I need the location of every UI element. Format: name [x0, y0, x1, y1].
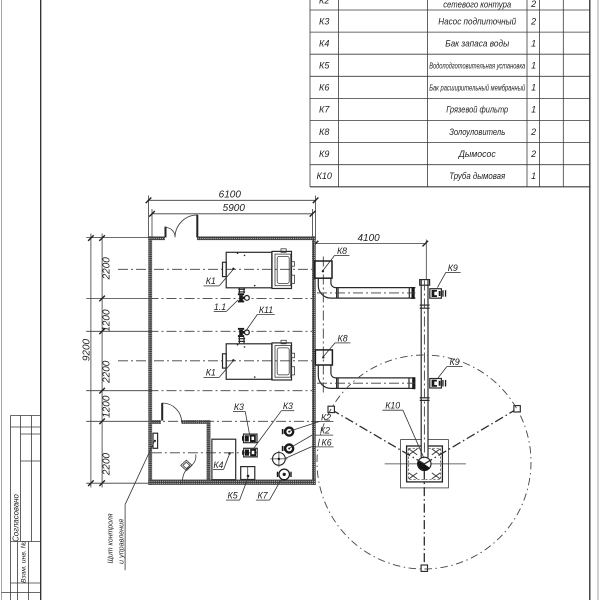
- svg-text:К6: К6: [322, 437, 332, 447]
- svg-text:Грязевой фильтр: Грязевой фильтр: [446, 105, 508, 115]
- svg-text:Бак расширительный мембранный: Бак расширительный мембранный: [429, 84, 525, 93]
- svg-text:Труба дымовая: Труба дымовая: [449, 171, 505, 181]
- svg-text:2200: 2200: [102, 257, 113, 281]
- svg-text:К3: К3: [234, 402, 244, 412]
- svg-text:Насос подпиточный: Насос подпиточный: [438, 16, 516, 26]
- svg-text:5900: 5900: [223, 203, 246, 214]
- svg-text:К1: К1: [206, 276, 216, 286]
- svg-text:К2: К2: [319, 0, 329, 6]
- svg-text:Дымосос: Дымосос: [458, 149, 496, 159]
- svg-text:К3: К3: [283, 401, 293, 411]
- svg-text:1200: 1200: [102, 395, 113, 418]
- svg-text:2200: 2200: [102, 360, 113, 384]
- svg-text:Взам. инв. №: Взам. инв. №: [20, 541, 27, 583]
- svg-text:К9: К9: [319, 149, 329, 159]
- svg-text:1.1: 1.1: [214, 302, 226, 312]
- svg-text:Золоуловитель: Золоуловитель: [449, 127, 505, 137]
- svg-text:К5: К5: [319, 61, 330, 71]
- svg-text:2: 2: [530, 127, 536, 137]
- svg-text:К1: К1: [206, 367, 216, 377]
- svg-text:Бак запаса воды: Бак запаса воды: [445, 38, 509, 48]
- svg-text:2200: 2200: [102, 452, 113, 476]
- svg-text:сетевого контура: сетевого контура: [443, 0, 511, 10]
- svg-text:2: 2: [530, 149, 536, 159]
- svg-text:К9: К9: [448, 263, 458, 273]
- svg-text:Согласовано: Согласовано: [11, 494, 20, 542]
- svg-text:2: 2: [530, 16, 536, 26]
- svg-text:2: 2: [530, 0, 536, 9]
- svg-text:К4: К4: [213, 460, 223, 470]
- svg-text:К11: К11: [259, 305, 273, 315]
- svg-text:К8: К8: [337, 246, 347, 256]
- svg-text:К4: К4: [319, 38, 329, 48]
- svg-text:Щит контроля: Щит контроля: [106, 514, 115, 564]
- svg-text:К10: К10: [385, 401, 400, 411]
- svg-text:К2: К2: [320, 426, 330, 436]
- svg-text:К7: К7: [319, 105, 330, 115]
- svg-text:К9: К9: [450, 357, 460, 367]
- svg-text:К7: К7: [258, 491, 269, 501]
- svg-text:9200: 9200: [81, 338, 92, 361]
- svg-text:1200: 1200: [102, 309, 113, 332]
- svg-text:1: 1: [531, 171, 536, 181]
- svg-text:К8: К8: [338, 333, 348, 343]
- svg-text:К5: К5: [228, 491, 238, 501]
- svg-text:1: 1: [531, 38, 536, 48]
- svg-text:К10: К10: [317, 171, 332, 181]
- svg-text:1: 1: [531, 83, 536, 93]
- svg-text:К2: К2: [321, 412, 331, 422]
- svg-text:1: 1: [531, 105, 536, 115]
- svg-text:6100: 6100: [219, 190, 242, 201]
- svg-text:4100: 4100: [357, 233, 380, 244]
- svg-text:Водоподготовительная установка: Водоподготовительная установка: [429, 62, 525, 71]
- svg-text:К3: К3: [319, 16, 329, 26]
- svg-text:К8: К8: [319, 127, 329, 137]
- svg-text:1: 1: [531, 61, 536, 71]
- svg-text:К6: К6: [319, 83, 329, 93]
- svg-text:и управления: и управления: [117, 519, 126, 564]
